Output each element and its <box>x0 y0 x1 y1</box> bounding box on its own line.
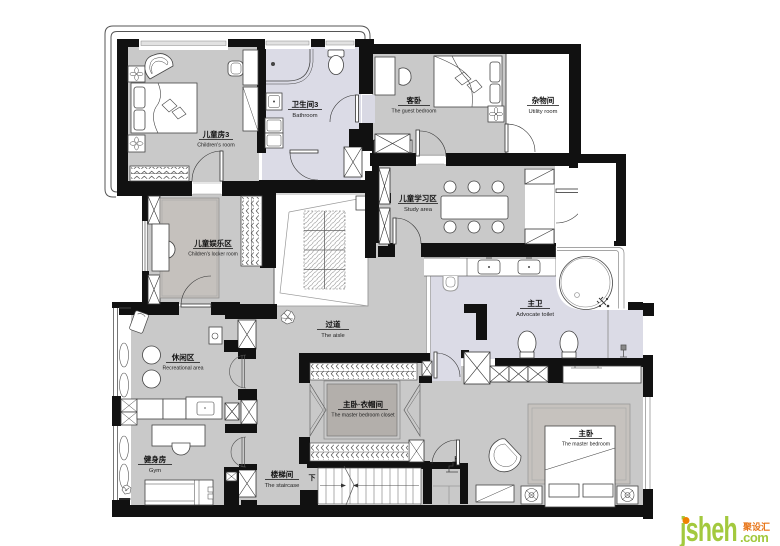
svg-text:Children's room: Children's room <box>197 143 235 149</box>
svg-text:The guest bedroom: The guest bedroom <box>392 109 437 115</box>
svg-text:Bathroom: Bathroom <box>292 113 317 119</box>
svg-text:Study area: Study area <box>404 207 433 213</box>
svg-text:主卧·衣帽间: 主卧·衣帽间 <box>343 399 383 409</box>
svg-text:健身房: 健身房 <box>144 454 167 464</box>
svg-text:儿童房3: 儿童房3 <box>202 129 230 139</box>
svg-text:Recreational area: Recreational area <box>163 366 204 372</box>
svg-text:过道: 过道 <box>326 319 341 329</box>
svg-text:楼梯间: 楼梯间 <box>271 469 294 479</box>
svg-text:Advocate toilet: Advocate toilet <box>516 312 554 318</box>
svg-text:主卫: 主卫 <box>528 298 543 308</box>
svg-text:休闲区: 休闲区 <box>171 352 195 362</box>
svg-text:儿童学习区: 儿童学习区 <box>398 193 437 203</box>
svg-text:客卧: 客卧 <box>406 95 422 105</box>
svg-text:The aisle: The aisle <box>321 333 345 339</box>
svg-text:.com: .com <box>740 530 768 545</box>
svg-text:The master bedroom: The master bedroom <box>562 442 610 448</box>
svg-text:主卧: 主卧 <box>579 428 594 438</box>
svg-text:下: 下 <box>309 474 316 482</box>
svg-text:jsheh: jsheh <box>679 512 737 546</box>
svg-text:聚设汇: 聚设汇 <box>742 521 770 532</box>
svg-text:The staircase: The staircase <box>265 483 300 489</box>
svg-text:杂物间: 杂物间 <box>532 95 555 105</box>
svg-text:Utility room: Utility room <box>529 109 558 115</box>
svg-text:Gym: Gym <box>149 468 161 474</box>
svg-text:儿童娱乐区: 儿童娱乐区 <box>193 238 232 248</box>
svg-text:The master bedroom closet: The master bedroom closet <box>331 413 395 419</box>
svg-text:Children's locker room: Children's locker room <box>188 252 238 258</box>
svg-text:卫生间3: 卫生间3 <box>292 99 319 109</box>
